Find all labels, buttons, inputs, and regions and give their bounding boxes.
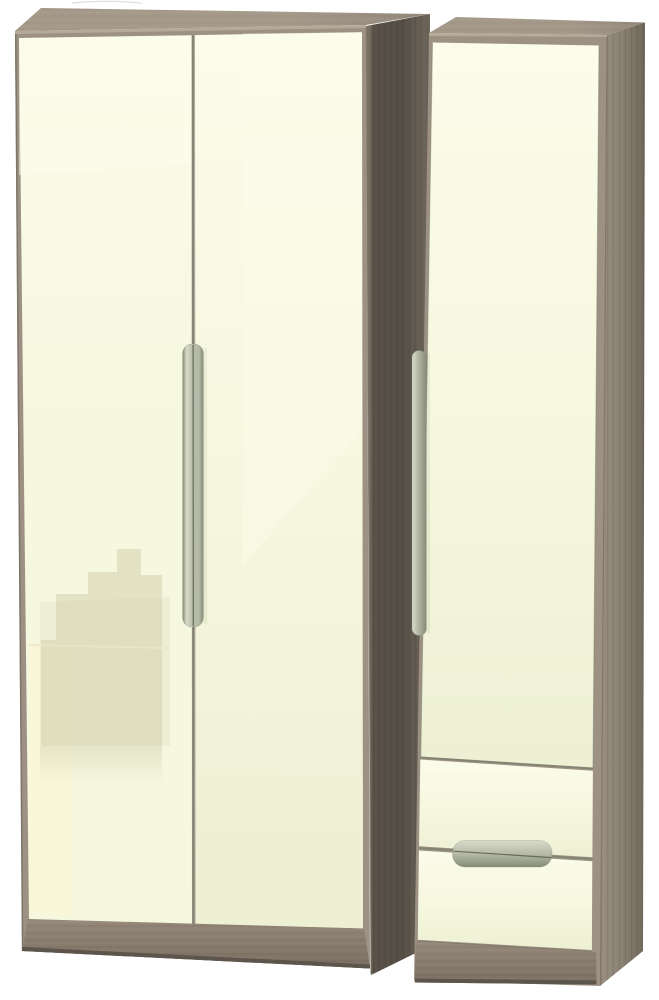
product-photo-canvas [0, 0, 659, 1000]
skyline-block [56, 594, 88, 746]
drawer-handle [453, 841, 553, 868]
handle-cast-shadow [204, 348, 207, 624]
door-sheen-highlight [19, 36, 191, 176]
double-wardrobe-handles [183, 344, 207, 627]
skyline-block [141, 575, 162, 746]
handle-cast-shadow [427, 353, 430, 633]
wardrobe-product-photo [0, 0, 659, 1000]
wood-grain-overlay [600, 23, 645, 987]
door-sheen-shade [195, 770, 363, 929]
double-wardrobe [15, 8, 430, 975]
skyline-block [88, 572, 117, 746]
skyline-block [41, 640, 56, 746]
vertical-edge-handle [412, 351, 426, 636]
reflection-fade [40, 746, 162, 784]
horizontal-handle [453, 841, 553, 868]
single-wardrobe-handle [412, 351, 430, 636]
single-wardrobe [412, 17, 645, 986]
single-wardrobe-door [421, 43, 599, 768]
